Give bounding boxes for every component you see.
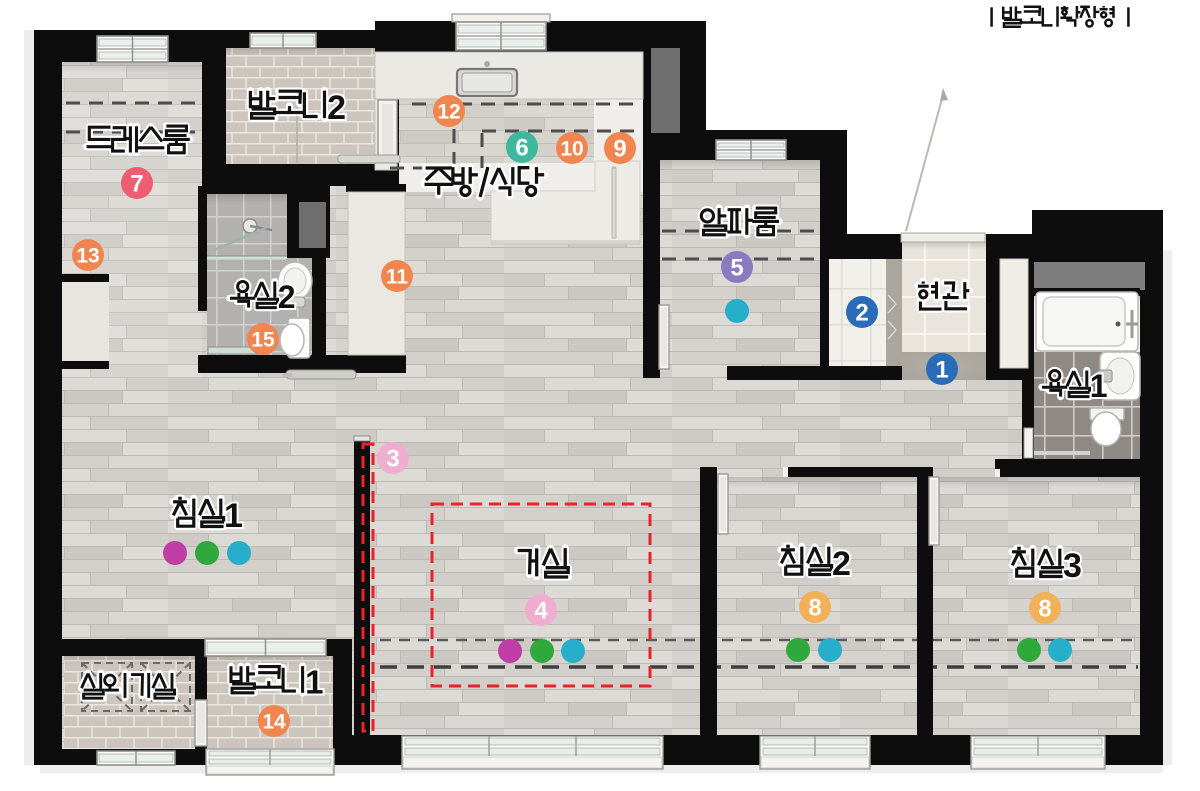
svg-text:1: 1 (305, 663, 323, 700)
svg-text:14: 14 (262, 711, 286, 734)
svg-text:9: 9 (613, 136, 626, 163)
svg-text:2: 2 (855, 300, 868, 327)
svg-text:6: 6 (515, 135, 528, 162)
svg-text:10: 10 (560, 138, 583, 161)
svg-text:1: 1 (935, 357, 948, 384)
svg-text:3: 3 (386, 446, 399, 473)
svg-text:15: 15 (251, 329, 275, 352)
svg-text:2: 2 (278, 279, 296, 315)
svg-text:1: 1 (224, 497, 243, 535)
svg-text:5: 5 (730, 255, 743, 282)
svg-text:3: 3 (1063, 547, 1082, 585)
svg-text:8: 8 (1038, 596, 1051, 623)
svg-text:11: 11 (386, 266, 409, 289)
svg-text:8: 8 (808, 595, 821, 622)
svg-text:4: 4 (534, 598, 548, 625)
svg-text:12: 12 (437, 101, 460, 124)
svg-text:2: 2 (327, 89, 346, 127)
svg-text:7: 7 (130, 171, 143, 198)
svg-text:1: 1 (1090, 368, 1108, 404)
svg-text:2: 2 (832, 545, 851, 583)
svg-text:13: 13 (76, 245, 99, 268)
